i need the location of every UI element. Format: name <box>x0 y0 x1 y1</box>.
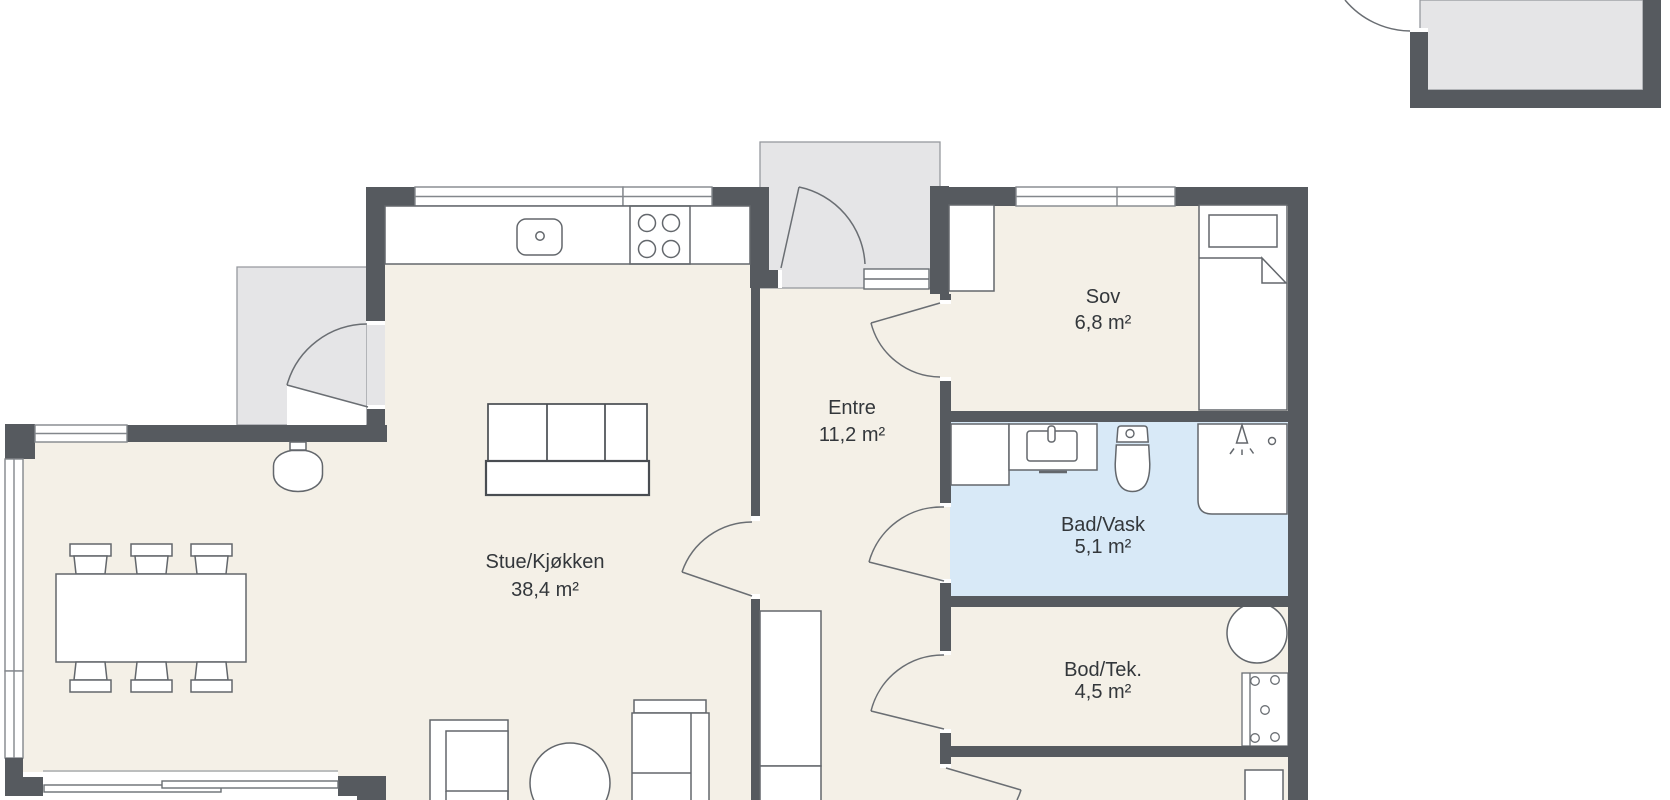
svg-text:Entre: Entre <box>828 397 876 419</box>
svg-text:4,5 m²: 4,5 m² <box>1075 681 1132 703</box>
svg-text:Bod/Tek.: Bod/Tek. <box>1064 659 1142 681</box>
svg-text:Bad/Vask: Bad/Vask <box>1061 514 1146 536</box>
svg-text:Stue/Kjøkken: Stue/Kjøkken <box>486 551 605 573</box>
svg-text:38,4 m²: 38,4 m² <box>511 579 579 601</box>
svg-text:11,2 m²: 11,2 m² <box>819 424 886 446</box>
svg-text:Sov: Sov <box>1086 286 1120 308</box>
svg-text:6,8 m²: 6,8 m² <box>1075 312 1132 334</box>
svg-text:5,1 m²: 5,1 m² <box>1075 536 1132 558</box>
